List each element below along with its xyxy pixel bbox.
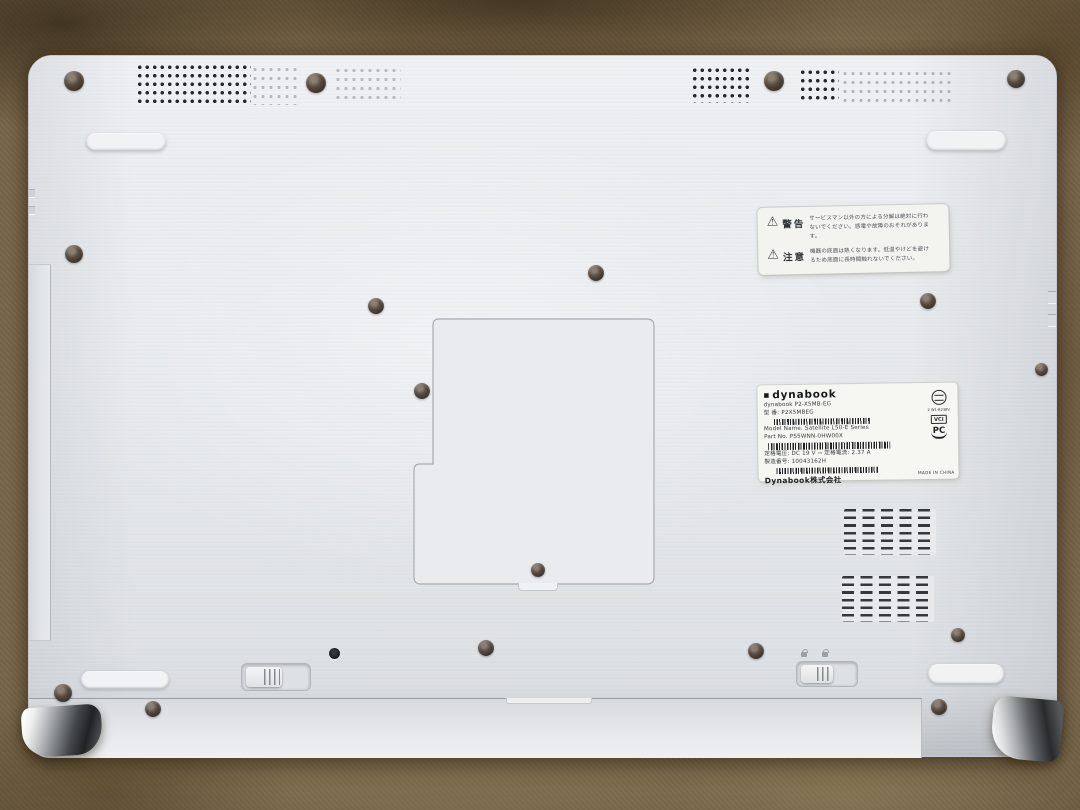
screw [65, 245, 83, 263]
brand-logo-text: dynabook [772, 389, 836, 400]
battery-seam-tab [506, 698, 592, 704]
screw [478, 640, 494, 656]
warning-text: サービスマン以外の方による分解は絶対に行わないでください。感電や故障のおそれがあ… [809, 212, 930, 241]
screw [748, 643, 764, 659]
screw [1035, 363, 1048, 376]
screw [764, 71, 784, 91]
screw [306, 73, 326, 93]
screw [414, 383, 430, 399]
warning-title: 警告 [782, 216, 805, 230]
barcode [774, 417, 870, 424]
screw [145, 701, 161, 717]
brand-mark-icon: ◼ [763, 392, 769, 399]
caution-text: 機器の底面は熱くなります。低温やけどを避けるため底面に長時間触れないでください。 [810, 246, 930, 266]
speaker-vent-slots-icon [844, 509, 936, 555]
carpet-background: ⚠ 警告 サービスマン以外の方による分解は絶対に行わないでください。感電や故障の… [0, 0, 1080, 810]
battery-release-latch [796, 661, 858, 687]
screw [588, 265, 604, 281]
unlock-icon [822, 652, 828, 657]
warning-row: ⚠ 警告 サービスマン以外の方による分解は絶対に行わないでください。感電や故障の… [766, 212, 942, 242]
warning-triangle-icon: ⚠ [767, 249, 779, 262]
screw [64, 71, 84, 91]
screw [531, 563, 545, 577]
battery-pack [29, 698, 922, 758]
screw [951, 628, 965, 642]
cooling-vent-left-icon [136, 63, 251, 106]
cooling-vent-right-embossed-icon [841, 69, 951, 104]
screw [1007, 70, 1025, 88]
screw [920, 293, 936, 309]
cooling-vent-right2-icon [799, 68, 839, 103]
optical-drive-seam [29, 264, 51, 641]
rubber-foot [926, 131, 1006, 151]
edge-notch [1048, 291, 1056, 304]
cooling-vent-left2-embossed-icon [334, 66, 401, 104]
latch-slider [246, 667, 282, 687]
speaker-vent-slots-icon [842, 576, 934, 622]
warning-triangle-icon: ⚠ [766, 216, 778, 229]
lock-icon [801, 652, 807, 657]
laptop-bottom-case: ⚠ 警告 サービスマン以外の方による分解は絶対に行わないでください。感電や故障の… [28, 55, 1057, 757]
serial-number-text: 製造番号: 10043162H [764, 456, 952, 466]
certification-column: 2 W1-B23BV VCI PC [923, 390, 954, 439]
battery-lock-latch [241, 663, 311, 691]
pc-recycle-icon: PC [931, 427, 948, 439]
access-panel-tab [518, 583, 558, 591]
barcode [776, 466, 878, 473]
edge-notch [1048, 314, 1056, 327]
warning-label: ⚠ 警告 サービスマン以外の方による分解は絶対に行わないでください。感電や故障の… [757, 204, 949, 275]
spec-label: ◼ dynabook dynabook P2-X5MB-EG 型 番: P2X5… [757, 383, 958, 482]
edge-notch [29, 206, 35, 215]
vcci-mark-icon: VCI [930, 415, 947, 424]
latch-slider [801, 665, 833, 683]
cert-code-text: 2 W1-B23BV [928, 408, 950, 412]
rubber-foot [86, 133, 166, 151]
screw [54, 684, 72, 702]
cooling-vent-right-icon [691, 66, 753, 103]
caution-title: 注意 [783, 249, 806, 263]
pinhole [329, 648, 340, 659]
access-panel-cover [413, 318, 655, 586]
pse-mark-icon [931, 390, 946, 405]
edge-notch [29, 189, 35, 198]
rubber-foot [928, 664, 1004, 684]
rubber-foot [81, 671, 169, 689]
barcode [768, 441, 890, 450]
cooling-vent-left-embossed-icon [251, 65, 301, 105]
caution-row: ⚠ 注意 機器の底面は熱くなります。低温やけどを避けるため底面に長時間触れないで… [767, 246, 942, 267]
screw [931, 699, 947, 715]
made-in-text: MADE IN CHINA [918, 470, 955, 476]
screw [368, 298, 384, 314]
